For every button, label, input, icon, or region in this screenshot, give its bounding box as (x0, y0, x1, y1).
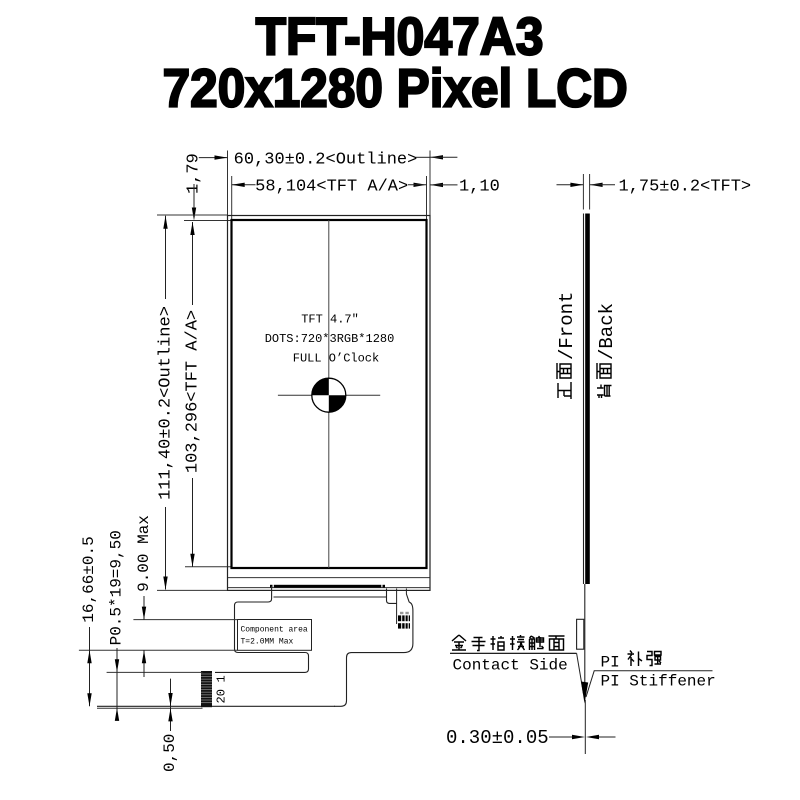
svg-text:/Back: /Back (596, 303, 618, 360)
svg-text:Contact Side: Contact Side (453, 657, 568, 675)
svg-text:/Front: /Front (556, 292, 578, 360)
svg-text:1,75±0.2<TFT>: 1,75±0.2<TFT> (619, 178, 752, 197)
svg-text:PI Stiffener: PI Stiffener (601, 673, 716, 691)
svg-text:60,30±0.2<Outline>: 60,30±0.2<Outline> (234, 150, 418, 169)
svg-text:FULL O’Clock: FULL O’Clock (293, 352, 379, 366)
svg-text:DOTS:720*3RGB*1280: DOTS:720*3RGB*1280 (265, 332, 395, 346)
svg-text:Component area: Component area (241, 626, 308, 635)
svg-text:58,104<TFT A/A>: 58,104<TFT A/A> (255, 178, 408, 197)
svg-text:20: 20 (215, 689, 229, 703)
svg-text:T=2.0MM Max: T=2.0MM Max (241, 638, 294, 647)
svg-text:720x1280 Pixel LCD: 720x1280 Pixel LCD (163, 58, 628, 118)
svg-text:PI: PI (601, 654, 620, 672)
svg-text:9.00 Max: 9.00 Max (135, 515, 153, 592)
svg-text:0.30±0.05: 0.30±0.05 (446, 727, 549, 749)
svg-text:1: 1 (215, 675, 229, 682)
svg-text:111,40±0.2<Outline>: 111,40±0.2<Outline> (157, 306, 176, 500)
svg-text:103,296<TFT A/A>: 103,296<TFT A/A> (184, 310, 203, 473)
svg-text:16,66±0.5: 16,66±0.5 (80, 536, 98, 622)
svg-text:P0.5*19=9,50: P0.5*19=9,50 (108, 530, 126, 645)
svg-text:0,50: 0,50 (161, 734, 179, 772)
svg-text:1,10: 1,10 (459, 178, 500, 197)
svg-text:TFT 4.7″: TFT 4.7″ (301, 313, 359, 327)
